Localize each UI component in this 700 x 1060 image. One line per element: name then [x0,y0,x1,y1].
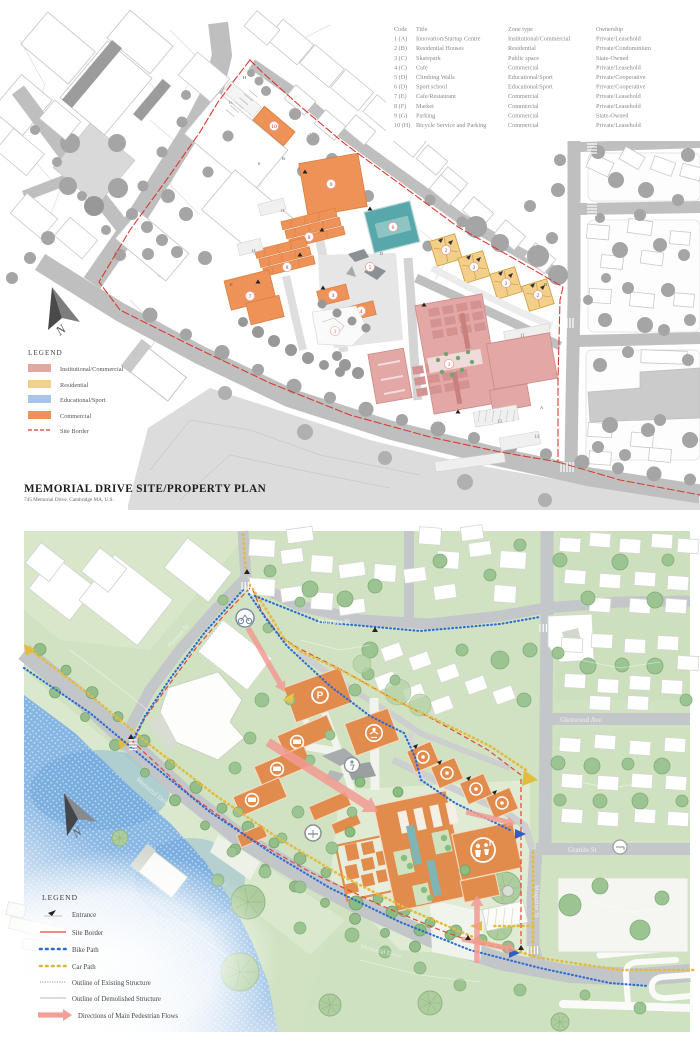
svg-text:7: 7 [249,294,252,300]
svg-text:5: 5 [369,265,372,271]
svg-text:Sport school: Sport school [416,84,447,91]
svg-text:Outline of Existing Structure: Outline of Existing Structure [72,980,151,987]
svg-text:Educational/Sport: Educational/Sport [508,84,553,91]
svg-text:Residential Houses: Residential Houses [416,45,464,52]
svg-text:Bike Path: Bike Path [72,947,99,954]
svg-text:Institutional/Commercial: Institutional/Commercial [508,36,570,43]
svg-text:1 (A): 1 (A) [394,36,407,43]
svg-text:6 (D): 6 (D) [394,84,407,91]
svg-text:Commercial: Commercial [508,103,539,110]
svg-text:Site Border: Site Border [60,428,90,435]
svg-text:Private/Cooperative: Private/Cooperative [596,74,646,81]
svg-text:2: 2 [537,293,540,299]
svg-text:MEMORIAL DRIVE SITE/PROPERTY P: MEMORIAL DRIVE SITE/PROPERTY PLAN [24,483,266,495]
svg-text:LEGEND: LEGEND [42,893,78,902]
svg-text:Cafe/Restaurant: Cafe/Restaurant [416,93,456,100]
svg-text:Ownership: Ownership [596,26,623,33]
svg-text:Entrance: Entrance [72,912,96,919]
svg-text:Car Path: Car Path [72,964,96,971]
svg-text:P: P [317,691,324,702]
svg-text:Residential: Residential [60,382,89,389]
svg-text:7 (E): 7 (E) [394,93,407,100]
svg-text:4 (C): 4 (C) [394,64,407,71]
svg-text:B: B [282,156,285,161]
svg-text:14: 14 [534,435,540,440]
svg-text:Outline of Demolished Structur: Outline of Demolished Structure [72,996,161,1003]
svg-text:Title: Title [416,26,428,33]
svg-text:Educational/Sport: Educational/Sport [60,397,106,404]
svg-text:Innovation/Startup Centre: Innovation/Startup Centre [416,36,481,43]
svg-text:3: 3 [334,329,337,335]
svg-text:Directions of Main Pedestrian: Directions of Main Pedestrian Flows [78,1013,178,1020]
svg-text:Climbing Walls: Climbing Walls [416,74,455,81]
svg-text:Private/Cooperative: Private/Cooperative [596,84,646,91]
svg-text:Private/Leasehold: Private/Leasehold [596,64,642,71]
svg-text:Glenwood Ave: Glenwood Ave [560,716,602,724]
svg-text:13: 13 [497,420,503,425]
svg-text:Private/Leasehold: Private/Leasehold [596,122,642,129]
svg-text:8: 8 [308,235,311,241]
svg-text:2: 2 [445,248,448,254]
svg-text:Public space: Public space [508,55,539,62]
svg-text:745 Memorial Drive, Cambridge: 745 Memorial Drive, Cambridge MA, U.S. [24,497,114,503]
svg-text:Code: Code [394,26,407,33]
svg-text:B: B [544,282,547,287]
svg-text:Commercial: Commercial [508,112,539,119]
svg-text:2: 2 [505,281,508,287]
svg-text:Skatepark: Skatepark [416,55,442,62]
svg-text:14: 14 [280,208,285,213]
svg-text:2 (B): 2 (B) [394,45,407,52]
svg-text:Granite St: Granite St [568,846,597,854]
svg-text:Cafe: Cafe [416,64,428,71]
svg-text:Commercial: Commercial [508,122,539,129]
svg-text:Institutional/Commercial: Institutional/Commercial [60,366,124,373]
svg-text:10: 10 [271,124,277,130]
svg-text:Private/Leasehold: Private/Leasehold [596,93,642,100]
svg-text:8 (F): 8 (F) [394,103,406,110]
svg-text:13: 13 [228,100,233,105]
svg-text:Private/Leasehold: Private/Leasehold [596,36,642,43]
svg-text:5 (D): 5 (D) [394,74,407,81]
svg-text:Educational/Sport: Educational/Sport [508,74,553,81]
svg-text:6: 6 [392,225,395,231]
svg-text:10 (H): 10 (H) [394,122,410,129]
svg-text:Bicycle Service and Parking: Bicycle Service and Parking [416,122,486,129]
svg-text:Residential: Residential [508,45,536,52]
svg-text:Site Border: Site Border [72,930,104,937]
svg-text:9 (G): 9 (G) [394,112,407,119]
svg-text:State-Owned: State-Owned [596,112,629,119]
svg-text:3 (C): 3 (C) [394,55,407,62]
svg-text:State-Owned: State-Owned [596,55,629,62]
svg-text:Commercial: Commercial [508,93,539,100]
svg-text:Magazine St: Magazine St [533,885,540,918]
svg-text:Commercial: Commercial [60,413,91,420]
svg-text:9: 9 [330,182,333,188]
svg-text:Private/Leasehold: Private/Leasehold [596,103,642,110]
svg-text:Zone type: Zone type [508,26,533,33]
svg-text:8: 8 [286,265,289,271]
svg-text:LEGEND: LEGEND [28,349,63,357]
svg-text:Private/Condominium: Private/Condominium [596,45,651,52]
svg-text:Commercial: Commercial [508,64,539,71]
svg-text:4: 4 [332,293,335,299]
svg-text:Parking: Parking [416,112,435,119]
svg-text:E: E [230,282,233,287]
svg-text:2: 2 [473,265,476,271]
svg-text:1: 1 [448,362,451,368]
svg-text:Florence St: Florence St [318,618,350,626]
svg-text:14: 14 [251,248,256,253]
svg-text:Market: Market [416,103,434,110]
